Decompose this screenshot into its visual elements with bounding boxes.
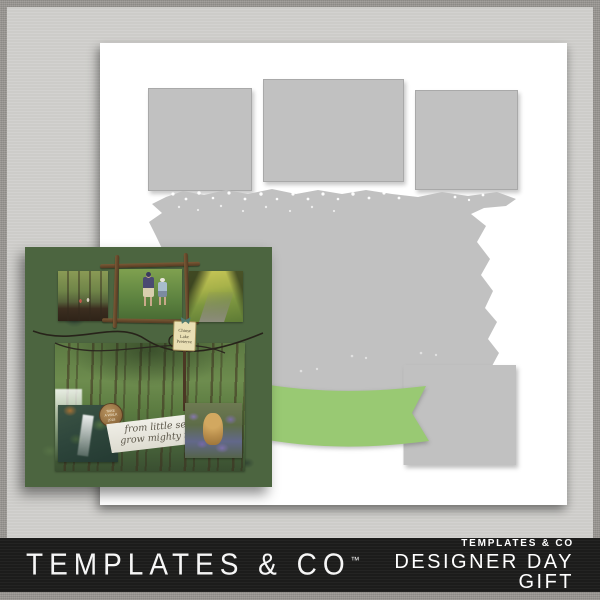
child-figure: [158, 282, 167, 297]
photo-placeholder-left: [148, 88, 252, 191]
photo-forest-hike-group: [58, 271, 108, 321]
sample-layout-preview: Chinse Lake Preserve TAKE A WALK 2018 fr…: [25, 247, 272, 487]
photo-placeholder-center: [263, 79, 404, 182]
twig-left: [113, 255, 119, 328]
product-name: DESIGNER DAY GIFT: [360, 552, 574, 592]
sign-post: [183, 349, 186, 411]
hanging-tag: Chinse Lake Preserve: [172, 321, 196, 352]
brand-logo: TEMPLATES & CO™: [26, 548, 360, 583]
photo-dog-in-bluebells: [185, 403, 242, 458]
trademark-symbol: ™: [351, 555, 360, 566]
product-title-block: TEMPLATES & CO DESIGNER DAY GIFT: [360, 539, 574, 592]
collection-name: TEMPLATES & CO: [360, 539, 574, 549]
badge-line-3: 2018: [100, 417, 122, 424]
brand-name: TEMPLATES & CO: [26, 548, 351, 581]
tag-line-3: Preserve: [174, 339, 195, 345]
photo-sunlit-forest-path: [189, 271, 243, 322]
twig-top: [100, 262, 200, 268]
adult-figure: [143, 277, 154, 297]
photo-kids-walking: [119, 269, 182, 319]
photo-placeholder-right: [415, 90, 518, 190]
product-preview-canvas: Chinse Lake Preserve TAKE A WALK 2018 fr…: [0, 0, 600, 600]
branding-footer: TEMPLATES & CO™ TEMPLATES & CO DESIGNER …: [0, 538, 600, 592]
